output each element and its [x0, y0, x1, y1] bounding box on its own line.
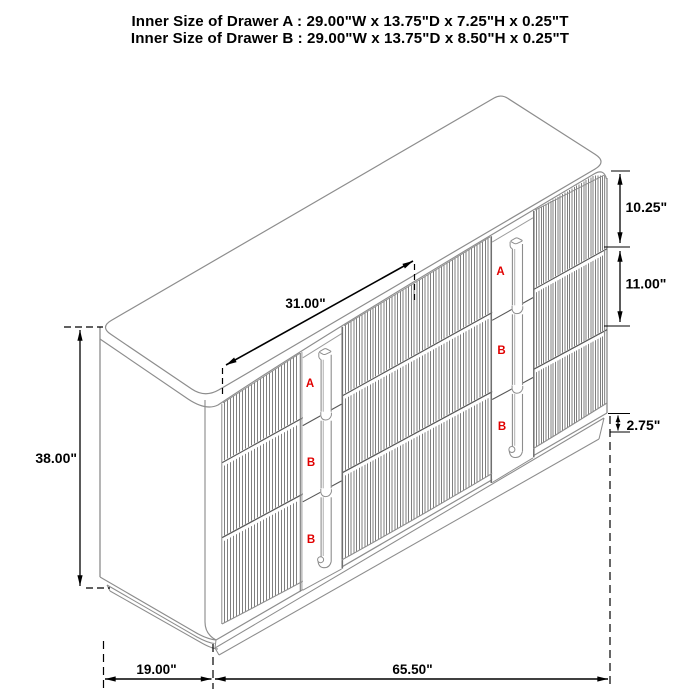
- svg-text:19.00": 19.00": [136, 662, 176, 677]
- svg-text:Inner Size of Drawer B : 29.00: Inner Size of Drawer B : 29.00"W x 13.75…: [131, 30, 570, 47]
- svg-text:Inner Size of Drawer A : 29.00: Inner Size of Drawer A : 29.00"W x 13.75…: [131, 13, 569, 30]
- svg-text:A: A: [496, 266, 504, 278]
- svg-text:10.25": 10.25": [626, 199, 668, 215]
- svg-text:38.00": 38.00": [35, 450, 77, 466]
- svg-text:2.75": 2.75": [627, 417, 661, 433]
- svg-text:B: B: [497, 345, 505, 357]
- svg-text:B: B: [307, 534, 315, 546]
- svg-text:B: B: [307, 457, 315, 469]
- svg-text:A: A: [306, 378, 314, 390]
- svg-text:B: B: [498, 421, 506, 433]
- svg-text:65.50": 65.50": [392, 662, 432, 677]
- svg-text:31.00": 31.00": [285, 296, 325, 311]
- svg-text:11.00": 11.00": [626, 276, 667, 292]
